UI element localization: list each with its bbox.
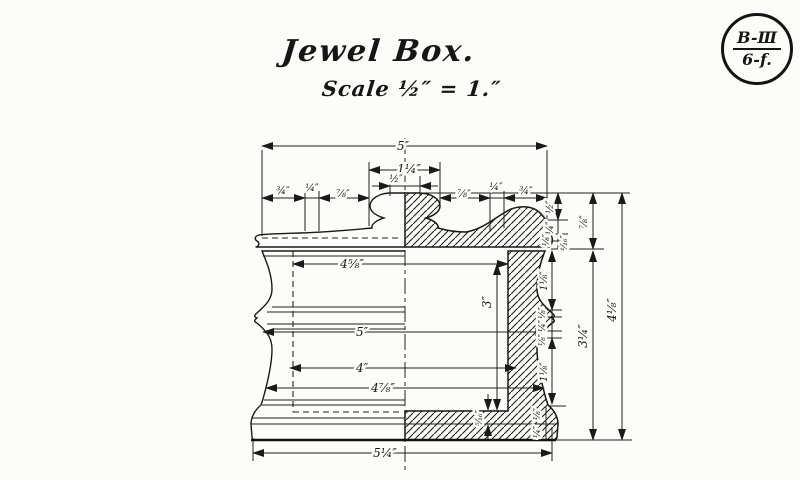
knob-left-profile	[255, 193, 405, 247]
dim-label-mid-width: 5″	[356, 325, 369, 339]
dim-label-body-step-7: ¼″	[532, 425, 543, 438]
dim-label-body-step-4: ⅛″	[538, 333, 548, 346]
body-left-profile	[251, 251, 272, 440]
dim-label-lid-left-c: ⅞″	[336, 189, 350, 200]
dim-label-base-width: 5¼″	[373, 446, 397, 460]
dim-label-lower-width: 4⅞″	[370, 381, 395, 395]
dim-label-inner-top-width: 4⅝″	[339, 257, 364, 271]
dim-label-knob-top: ½″	[389, 174, 403, 185]
dim-label-body-height: 3¼″	[576, 324, 590, 348]
drafting-sheet: Jewel Box. Scale ½″ = 1.″ B-Ⅲ 6-f.	[0, 0, 800, 480]
dim-label-top-width: 5″	[397, 139, 410, 153]
dim-label-lid-left-a: ¾″	[276, 186, 290, 197]
dim-label-lid-left-b: ¼″	[305, 183, 319, 194]
dim-label-body-step-6: ⅛″	[533, 407, 543, 420]
dim-label-body-step-2: ⅛″	[538, 306, 548, 319]
dim-label-lid-step-1: ½″	[545, 200, 556, 214]
dim-label-body-step-1: 1⅛″	[539, 271, 550, 291]
dim-label-lid-right-c: ¾″	[519, 186, 533, 197]
section-cut	[405, 193, 558, 440]
dim-label-body-step-5: 1⅛″	[539, 362, 550, 382]
lid-knob-section	[405, 193, 552, 247]
dim-label-floor-thickness: ⁵⁄₁₆″	[475, 410, 485, 426]
dim-label-inner-bottom-width: 4″	[355, 361, 369, 375]
dim-label-lid-step-4: ¹⁄₁₆″	[560, 235, 570, 251]
dim-label-lid-step-2: ¼″	[545, 221, 556, 235]
dim-label-lid-right-a: ⅞″	[457, 189, 471, 200]
dim-label-lid-right-b: ¼″	[489, 182, 503, 193]
dim-label-overall-height: 4⅛″	[605, 298, 619, 323]
dim-label-inner-depth: 3″	[480, 295, 494, 308]
dim-label-body-step-3: ¼″	[537, 319, 548, 332]
dim-label-lid-step-3: ⅛″	[542, 233, 552, 246]
dim-label-lid-height: ⅞″	[579, 215, 590, 229]
jewel-box-section-drawing: 5″ 1¼″ ½″ ¾″ ¼″ ⅞″ ⅞″ ¼″ ¾″ 4⅝″ 5″ 4″ 4⅞…	[0, 0, 800, 480]
